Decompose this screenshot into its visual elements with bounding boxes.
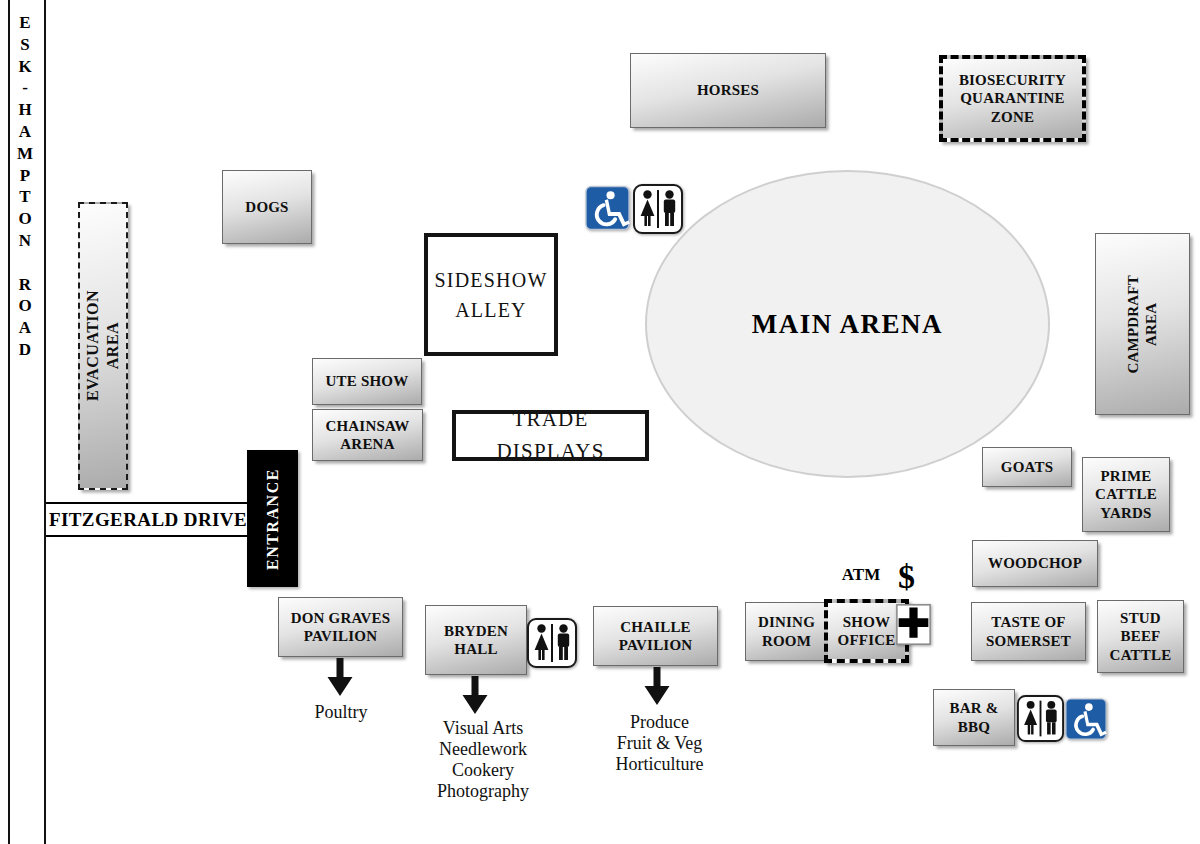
zone-prime-cattle-yards: PRIME CATTLE YARDS xyxy=(1082,457,1170,532)
zone-trade-displays: TRADE DISPLAYS xyxy=(452,410,649,461)
zone-evacuation-area-label: EVACUATION AREA xyxy=(83,290,122,401)
toilets-icon xyxy=(633,183,683,235)
toilets-icon xyxy=(1017,694,1064,743)
note-poultry: Poultry xyxy=(291,702,391,723)
zone-chainsaw-arena: CHAINSAW ARENA xyxy=(312,409,423,461)
zone-evacuation-area: EVACUATION AREA xyxy=(78,202,128,490)
esk-hampton-road-line-inner xyxy=(44,0,46,844)
zone-chaille-pavilion-label: CHAILLE PAVILION xyxy=(619,618,693,655)
toilets-icon xyxy=(527,618,577,668)
zone-woodchop-label: WOODCHOP xyxy=(988,554,1082,572)
down-arrow-icon xyxy=(462,676,488,714)
wheelchair-accessible-icon xyxy=(585,185,630,231)
entrance-label: ENTRANCE xyxy=(264,468,282,570)
down-arrow-icon xyxy=(644,667,670,705)
zone-sideshow-alley: SIDESHOW ALLEY xyxy=(424,233,558,356)
entrance-gate: ENTRANCE xyxy=(247,450,298,587)
down-arrow-icon xyxy=(327,658,353,696)
zone-horses-label: HORSES xyxy=(697,81,759,99)
zone-don-graves-pavilion: DON GRAVES PAVILION xyxy=(278,597,403,657)
zone-campdraft-area-label: CAMPDRAFT AREA xyxy=(1124,275,1161,373)
zone-woodchop: WOODCHOP xyxy=(972,540,1098,587)
zone-sideshow-alley-label: SIDESHOW ALLEY xyxy=(435,265,548,325)
zone-goats: GOATS xyxy=(982,447,1072,487)
note-chaille-contents: Produce Fruit & Veg Horticulture xyxy=(582,712,737,775)
zone-dining-room: DINING ROOM xyxy=(745,602,828,661)
zone-don-graves-pavilion-label: DON GRAVES PAVILION xyxy=(291,609,391,646)
zone-main-arena-label: MAIN ARENA xyxy=(752,309,943,340)
zone-chainsaw-arena-label: CHAINSAW ARENA xyxy=(325,417,409,454)
zone-biosecurity-quarantine: BIOSECURITY QUARANTINE ZONE xyxy=(939,55,1086,142)
note-bryden-contents: Visual Arts Needlework Cookery Photograp… xyxy=(403,718,563,802)
zone-dogs-label: DOGS xyxy=(245,198,288,216)
zone-dogs: DOGS xyxy=(222,170,312,244)
zone-trade-displays-label: TRADE DISPLAYS xyxy=(456,404,645,467)
showgrounds-map: E S K - H A M P T O N R O A D FITZGERALD… xyxy=(0,0,1200,844)
zone-goats-label: GOATS xyxy=(1001,458,1053,476)
zone-chaille-pavilion: CHAILLE PAVILION xyxy=(593,606,718,666)
zone-stud-beef-cattle: STUD BEEF CATTLE xyxy=(1097,600,1184,673)
zone-dining-room-label: DINING ROOM xyxy=(758,613,815,650)
first-aid-cross-icon xyxy=(896,604,931,645)
zone-bar-bbq-label: BAR & BBQ xyxy=(950,699,999,736)
atm-label: ATM xyxy=(838,565,884,585)
zone-ute-show-label: UTE SHOW xyxy=(326,372,409,390)
wheelchair-accessible-icon xyxy=(1065,696,1107,742)
zone-show-office-label: SHOW OFFICE xyxy=(838,613,896,650)
zone-stud-beef-cattle-label: STUD BEEF CATTLE xyxy=(1110,609,1172,664)
esk-hampton-road-label: E S K - H A M P T O N R O A D xyxy=(9,12,41,361)
fitzgerald-drive-label: FITZGERALD DRIVE xyxy=(46,509,247,531)
zone-bryden-hall: BRYDEN HALL xyxy=(425,605,527,675)
zone-main-arena: MAIN ARENA xyxy=(645,170,1050,478)
zone-campdraft-area: CAMPDRAFT AREA xyxy=(1095,233,1190,415)
zone-biosecurity-quarantine-label: BIOSECURITY QUARANTINE ZONE xyxy=(959,71,1066,126)
zone-ute-show: UTE SHOW xyxy=(312,358,422,405)
zone-prime-cattle-yards-label: PRIME CATTLE YARDS xyxy=(1095,467,1157,522)
fitzgerald-drive-road: FITZGERALD DRIVE xyxy=(46,502,247,537)
zone-bryden-hall-label: BRYDEN HALL xyxy=(444,622,508,659)
zone-taste-of-somerset: TASTE OF SOMERSET xyxy=(971,602,1086,661)
zone-horses: HORSES xyxy=(630,53,826,128)
zone-taste-of-somerset-label: TASTE OF SOMERSET xyxy=(986,613,1071,650)
zone-bar-bbq: BAR & BBQ xyxy=(933,689,1015,746)
dollar-sign: $ xyxy=(898,560,915,594)
